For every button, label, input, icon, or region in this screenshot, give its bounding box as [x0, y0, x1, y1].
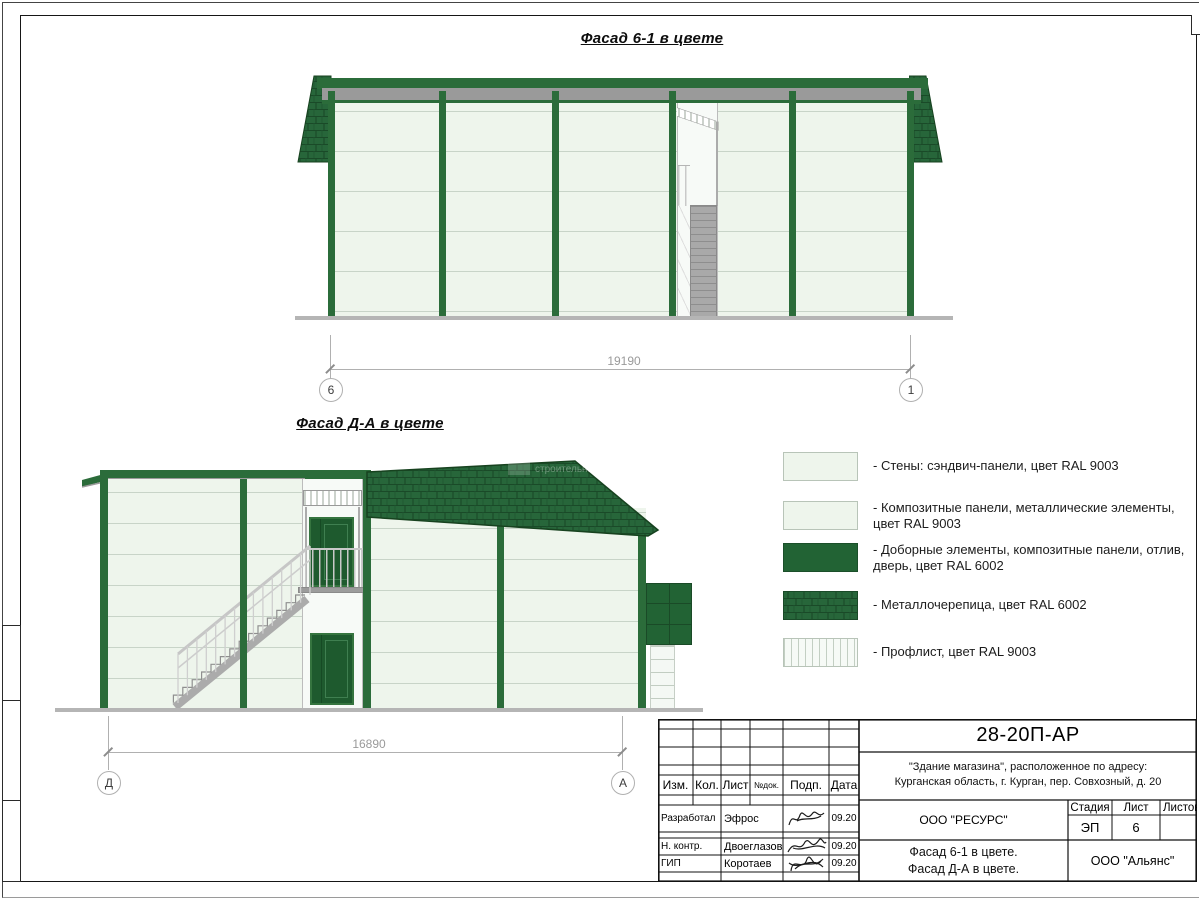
ground-line	[55, 708, 703, 712]
column	[552, 91, 559, 318]
tb-col-izm: Изм.	[658, 775, 693, 795]
project-code: 28-20П-АР	[859, 719, 1197, 752]
dimension-value: 16890	[330, 737, 408, 751]
sandwich-panel-wall	[331, 103, 913, 318]
axis-marker-d: Д	[97, 771, 121, 795]
legend-label: - Металлочерепица, цвет RAL 6002	[873, 597, 1191, 613]
axis-marker-a: А	[611, 771, 635, 795]
tb-role: ГИП	[658, 855, 721, 872]
margin-box	[2, 700, 21, 801]
staircase	[690, 205, 717, 318]
wall-pilaster-strip	[650, 645, 675, 710]
corner-box	[1191, 15, 1200, 35]
legend-swatch-metal-tile	[783, 591, 858, 620]
customer-org: ООО "Альянс"	[1068, 840, 1197, 882]
dimension-value: 19190	[585, 354, 663, 368]
legend-label: - Профлист, цвет RAL 9003	[873, 644, 1191, 660]
legend-swatch-trim	[783, 543, 858, 572]
sheets-label: Листов	[1160, 800, 1197, 815]
designer-org: ООО "РЕСУРС"	[859, 800, 1068, 840]
extension-line	[622, 716, 623, 770]
margin-box	[2, 800, 21, 882]
sheet-title-line1: Фасад 6-1 в цвете.	[909, 844, 1017, 861]
sheet-label: Лист	[1112, 800, 1160, 815]
gray-flashing-band	[322, 88, 921, 100]
tb-date: 09.20	[829, 805, 859, 832]
signature-icon	[783, 851, 829, 877]
column	[497, 520, 504, 710]
tb-col-ndoc: №док.	[750, 775, 783, 795]
column	[439, 91, 446, 318]
facade-6-1-title: Фасад 6-1 в цвете	[572, 30, 732, 47]
corner-column	[638, 523, 646, 710]
sheet-title: Фасад 6-1 в цвете. Фасад Д-А в цвете.	[859, 840, 1068, 882]
composite-panel-box	[646, 583, 692, 645]
tb-col-kol: Кол.	[693, 775, 721, 795]
extension-line	[108, 716, 109, 770]
tb-name: Коротаев	[721, 855, 783, 872]
legend-swatch-composite	[783, 501, 858, 530]
stage-label: Стадия	[1068, 800, 1112, 815]
tb-col-podp: Подп.	[783, 775, 829, 795]
object-address-line2: Курганская область, г. Курган, пер. Совх…	[859, 775, 1197, 790]
column	[907, 91, 914, 318]
dimension-line	[108, 752, 623, 753]
extension-line	[910, 335, 911, 383]
tb-col-data: Дата	[829, 775, 859, 795]
entrance-canopy-profiled	[303, 490, 362, 507]
stage-value: ЭП	[1068, 815, 1112, 840]
dimension-line	[330, 369, 911, 370]
axis-marker-6: 6	[319, 378, 343, 402]
title-block: Изм. Кол. Лист №док. Подп. Дата Разработ…	[658, 719, 1197, 882]
column	[789, 91, 796, 318]
legend-swatch-walls	[783, 452, 858, 481]
metal-tile-roof: строительная	[360, 456, 665, 546]
tb-date: 09.20	[829, 855, 859, 872]
extension-line	[330, 335, 331, 383]
margin-box	[2, 625, 21, 701]
legend-swatch-profiled-sheet	[783, 638, 858, 667]
facade-6-1-drawing	[295, 70, 955, 340]
door-panel	[325, 640, 348, 698]
lower-door	[310, 633, 354, 705]
facade-d-a-drawing: строительная	[55, 448, 735, 718]
axis-marker-1: 1	[899, 378, 923, 402]
sheet-title-line2: Фасад Д-А в цвете.	[908, 861, 1019, 878]
facade-d-a-title: Фасад Д-А в цвете	[295, 415, 445, 432]
stair-canopy-profiled	[677, 103, 719, 135]
column	[328, 91, 335, 318]
legend-label: - Стены: сэндвич-панели, цвет RAL 9003	[873, 458, 1191, 474]
column	[669, 91, 676, 318]
sheet-value: 6	[1112, 815, 1160, 840]
tb-name: Двоеглазов	[721, 838, 783, 855]
tb-col-list: Лист	[721, 775, 750, 795]
column	[240, 479, 247, 710]
legend-label: - Композитные панели, металлические элем…	[873, 500, 1191, 532]
door-leaf-line	[321, 635, 322, 703]
tb-date: 09.20	[829, 838, 859, 855]
watermark-logo	[508, 462, 530, 475]
legend-label: - Доборные элементы, композитные панели,…	[873, 542, 1191, 574]
tb-role: Разработал	[658, 805, 721, 832]
external-staircase	[160, 538, 315, 716]
column	[100, 470, 108, 710]
object-address: "Здание магазина", расположенное по адре…	[859, 752, 1197, 800]
stair-post	[716, 122, 718, 206]
tb-name: Эфрос	[721, 805, 783, 832]
object-address-line1: "Здание магазина", расположенное по адре…	[859, 760, 1197, 775]
ground-line	[295, 316, 953, 320]
signature-icon	[783, 805, 829, 832]
tb-role: Н. контр.	[658, 838, 721, 855]
drawing-sheet: { "page": { "bg": "#ffffff" }, "facade_6…	[0, 0, 1200, 900]
watermark-text: строительная	[535, 464, 599, 475]
sheets-value	[1160, 815, 1197, 840]
legend: - Стены: сэндвич-панели, цвет RAL 9003 -…	[783, 450, 1193, 675]
stair-railing	[678, 165, 690, 206]
